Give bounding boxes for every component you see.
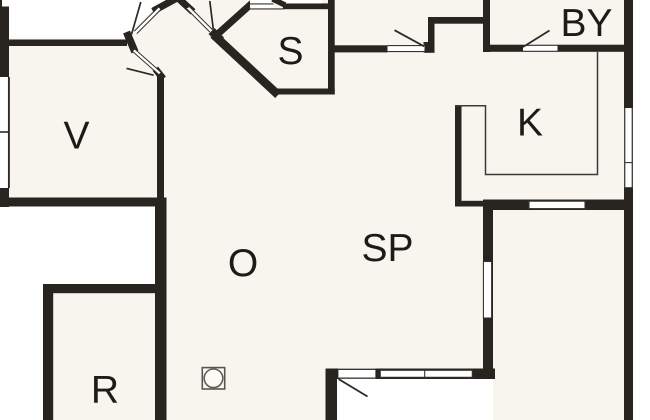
- svg-text:K: K: [517, 102, 543, 145]
- svg-text:R: R: [91, 369, 119, 412]
- svg-text:O: O: [228, 242, 258, 285]
- svg-text:S: S: [277, 30, 303, 73]
- svg-text:V: V: [63, 115, 89, 158]
- svg-text:SP: SP: [361, 227, 413, 270]
- svg-text:BY: BY: [560, 2, 612, 45]
